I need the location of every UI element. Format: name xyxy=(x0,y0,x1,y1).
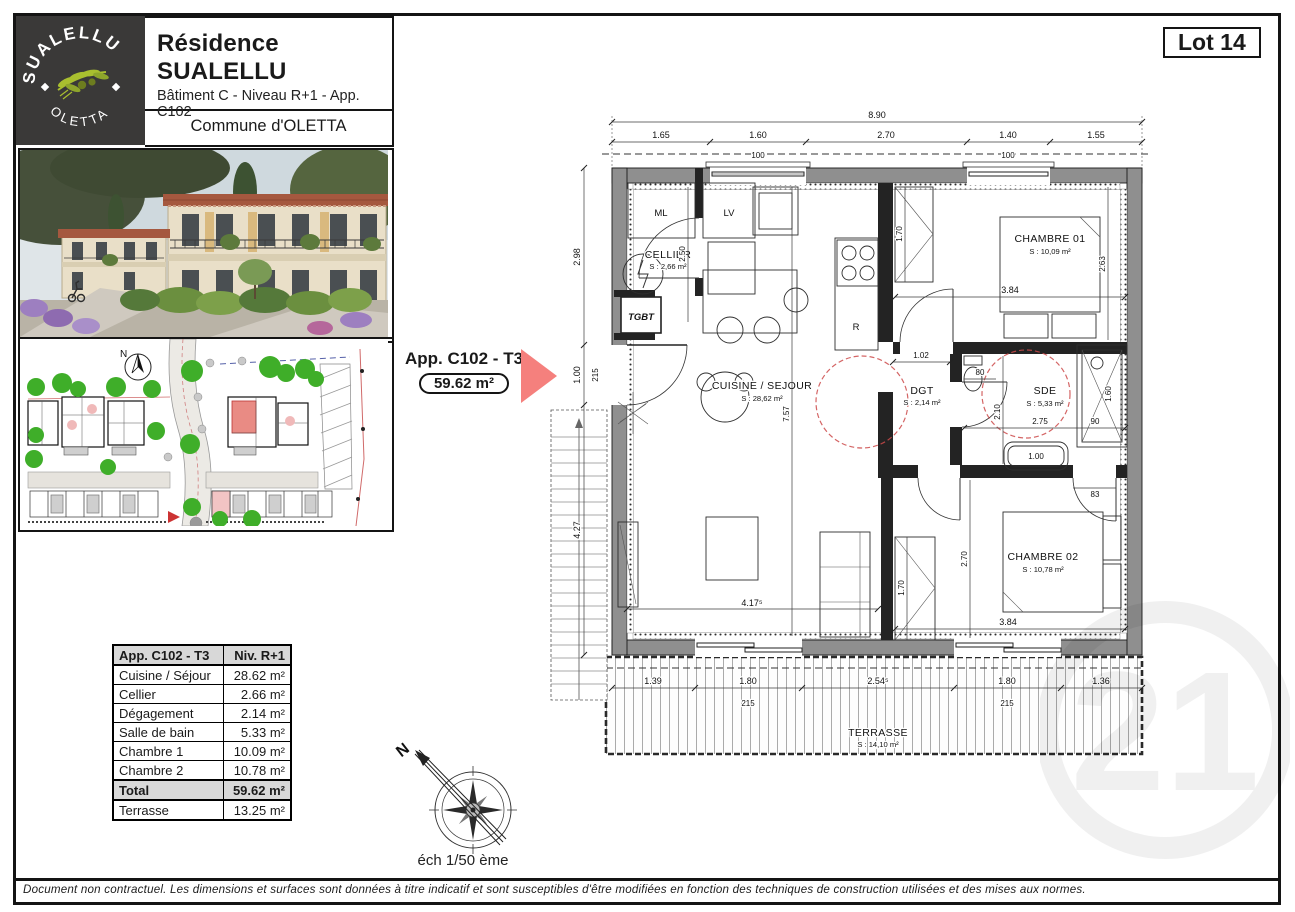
window-chambre1 xyxy=(963,162,1054,185)
dim-sejour-w: 4.17⁵ xyxy=(741,598,763,608)
north-needle-icon xyxy=(415,750,506,845)
table-row: Cuisine / Séjour 28.62 m² xyxy=(113,665,291,685)
room-label-terrasse: TERRASSE xyxy=(848,727,908,739)
row-label: Cellier xyxy=(113,685,223,704)
room-area-chambre1: S : 10,09 m² xyxy=(1029,247,1071,256)
siteplan-north-label: N xyxy=(120,349,127,360)
row-value: 5.33 m² xyxy=(223,723,291,742)
room-area-cellier: S : 2,66 m² xyxy=(649,262,687,271)
dim-left-1: 2.98 xyxy=(572,248,582,266)
dim-left-3: 4.27 xyxy=(572,521,582,539)
dim-cellier: 2.50 xyxy=(678,246,687,262)
dim-sde-door: 80 xyxy=(976,368,985,377)
sualellu-logo: SUALELLU OLETTA xyxy=(16,16,145,145)
dim-ch1-h: 2.63 xyxy=(1098,256,1107,272)
compass-rose: N xyxy=(388,738,538,863)
dim-left-sill: 215 xyxy=(591,368,600,382)
bay-chambre2 xyxy=(954,638,1061,657)
total-label: Total xyxy=(113,780,223,800)
tgbt-label: TGBT xyxy=(628,312,655,323)
building-left xyxy=(58,229,170,298)
apartment-name: App. C102 - T3 xyxy=(391,349,537,369)
room-area-sde: S : 5,33 m² xyxy=(1026,399,1064,408)
room-label-dgt: DGT xyxy=(910,385,934,397)
logo-icon: SUALELLU OLETTA xyxy=(16,16,145,145)
scale-label: éch 1/50 ème xyxy=(378,852,548,869)
row-value: 10.78 m² xyxy=(223,761,291,781)
degagement: DGT S : 2,14 m² 1.02 xyxy=(890,351,953,407)
table-header-level: Niv. R+1 xyxy=(223,645,291,665)
table-header-apartment: App. C102 - T3 xyxy=(113,645,223,665)
commune-label: Commune d'OLETTA xyxy=(191,117,347,136)
header-title-box: Résidence SUALELLU Bâtiment C - Niveau R… xyxy=(145,16,394,111)
dim-bot-1: 1.39 xyxy=(644,676,662,686)
room-area-terrasse: S : 14,10 m² xyxy=(857,740,899,749)
dim-shower-w: 90 xyxy=(1091,417,1100,426)
table-header-row: App. C102 - T3 Niv. R+1 xyxy=(113,645,291,665)
chambre1: CHAMBRE 01 S : 10,09 m² 1.70 2.63 3.84 xyxy=(892,187,1128,340)
floor-plan-svg: TERRASSE S : 14,10 m² xyxy=(548,92,1184,764)
accessibility-circle-sde xyxy=(982,350,1070,438)
accessibility-circle-sejour xyxy=(816,356,908,448)
dim-bot-4: 1.80 xyxy=(998,676,1016,686)
dim-sde-h: 2.10 xyxy=(993,404,1002,420)
apartment-callout: App. C102 - T3 59.62 m² xyxy=(391,349,537,394)
surface-table: App. C102 - T3 Niv. R+1 Cuisine / Séjour… xyxy=(112,644,292,821)
room-label-chambre1: CHAMBRE 01 xyxy=(1014,233,1085,245)
terrace-label: Terrasse xyxy=(113,800,223,820)
table-row: Chambre 2 10.78 m² xyxy=(113,761,291,781)
dim-top-3: 2.70 xyxy=(877,130,895,140)
table-row: Salle de bain 5.33 m² xyxy=(113,723,291,742)
dim-top-1: 1.65 xyxy=(652,130,670,140)
row-label: Salle de bain xyxy=(113,723,223,742)
row-label: Chambre 1 xyxy=(113,742,223,761)
row-value: 28.62 m² xyxy=(223,665,291,685)
dim-ch1-closet: 1.70 xyxy=(895,226,904,242)
table-row: Cellier 2.66 m² xyxy=(113,685,291,704)
dim-dgt-w: 1.02 xyxy=(913,351,929,360)
table-terrace-row: Terrasse 13.25 m² xyxy=(113,800,291,820)
row-label: Chambre 2 xyxy=(113,761,223,781)
table-total-row: Total 59.62 m² xyxy=(113,780,291,800)
lot-label: Lot 14 xyxy=(1178,29,1246,55)
north-label: N xyxy=(393,740,413,761)
site-plan-image: N xyxy=(18,337,394,532)
bay-sejour xyxy=(695,638,802,657)
room-area-chambre2: S : 10,78 m² xyxy=(1022,565,1064,574)
room-label-sde: SDE xyxy=(1034,385,1057,397)
commune-box: Commune d'OLETTA xyxy=(145,107,394,147)
compass-rose-icon: N xyxy=(388,738,538,858)
window-kitchen xyxy=(706,162,810,185)
dim-bot-sill-1: 215 xyxy=(741,699,755,708)
dim-top-4: 1.40 xyxy=(999,130,1017,140)
exterior-stairs xyxy=(551,410,607,700)
table-row: Chambre 1 10.09 m² xyxy=(113,742,291,761)
dim-sill-1: 100 xyxy=(751,151,765,160)
room-area-cuisine: S : 28,62 m² xyxy=(741,394,783,403)
dim-ch2-closet: 1.70 xyxy=(897,580,906,596)
plan-document-page: SUALELLU OLETTA Résidence SUALELLU Bâti xyxy=(0,0,1295,912)
dim-sde-w: 2.75 xyxy=(1032,417,1048,426)
dim-bot-sill-2: 215 xyxy=(1000,699,1014,708)
site-plan-svg: N xyxy=(20,339,388,526)
dim-bot-2: 1.80 xyxy=(739,676,757,686)
dim-ch2-w: 3.84 xyxy=(999,617,1017,627)
disclaimer-text: Document non contractuel. Les dimensions… xyxy=(16,878,1278,902)
residence-photo-image xyxy=(20,150,388,337)
dim-left-2: 1.00 xyxy=(572,366,582,384)
total-value: 59.62 m² xyxy=(223,780,291,800)
row-value: 10.09 m² xyxy=(223,742,291,761)
dim-sejour-h: 7.57 xyxy=(782,406,791,422)
dim-ch1-w: 3.84 xyxy=(1001,285,1019,295)
page-title: Résidence SUALELLU xyxy=(157,30,392,86)
entrance-door xyxy=(610,345,687,405)
hatched-area xyxy=(320,364,352,489)
dim-top-total: 8.90 xyxy=(868,110,886,120)
dim-vanity: 1.00 xyxy=(1028,452,1044,461)
cellier: TGBT ML LV CELLIER S : 2,66 m² 2.50 xyxy=(621,183,798,333)
fridge-label: R xyxy=(853,322,860,333)
room-label-cuisine: CUISINE / SEJOUR xyxy=(712,380,812,392)
room-area-dgt: S : 2,14 m² xyxy=(903,398,941,407)
residence-photo xyxy=(18,148,394,343)
apartment-area-pill: 59.62 m² xyxy=(419,373,509,394)
lv-label: LV xyxy=(724,208,736,219)
row-value: 2.14 m² xyxy=(223,704,291,723)
dim-chain-top: 8.90 1.65 1.60 2.70 1.40 1.55 100 100 xyxy=(609,110,1145,166)
ml-label: ML xyxy=(654,208,667,219)
dim-bot-5: 1.36 xyxy=(1092,676,1110,686)
dim-door83: 83 xyxy=(1091,490,1100,499)
footer-disclaimer-strip: Document non contractuel. Les dimensions… xyxy=(13,878,1281,905)
row-label: Cuisine / Séjour xyxy=(113,665,223,685)
terrace-value: 13.25 m² xyxy=(223,800,291,820)
dim-sill-2: 100 xyxy=(1001,151,1015,160)
highlighted-unit xyxy=(232,401,256,433)
dim-top-5: 1.55 xyxy=(1087,130,1105,140)
dim-top-2: 1.60 xyxy=(749,130,767,140)
table-row: Dégagement 2.14 m² xyxy=(113,704,291,723)
row-value: 2.66 m² xyxy=(223,685,291,704)
floor-plan: TERRASSE S : 14,10 m² xyxy=(548,92,1184,769)
dim-ch2-h: 2.70 xyxy=(960,551,969,567)
room-label-chambre2: CHAMBRE 02 xyxy=(1007,551,1078,563)
dim-bot-3: 2.54⁵ xyxy=(867,676,889,686)
lot-number-badge: Lot 14 xyxy=(1163,27,1261,58)
row-label: Dégagement xyxy=(113,704,223,723)
dim-shower-h: 1.60 xyxy=(1104,386,1113,402)
terrace: TERRASSE S : 14,10 m² xyxy=(606,657,1142,754)
